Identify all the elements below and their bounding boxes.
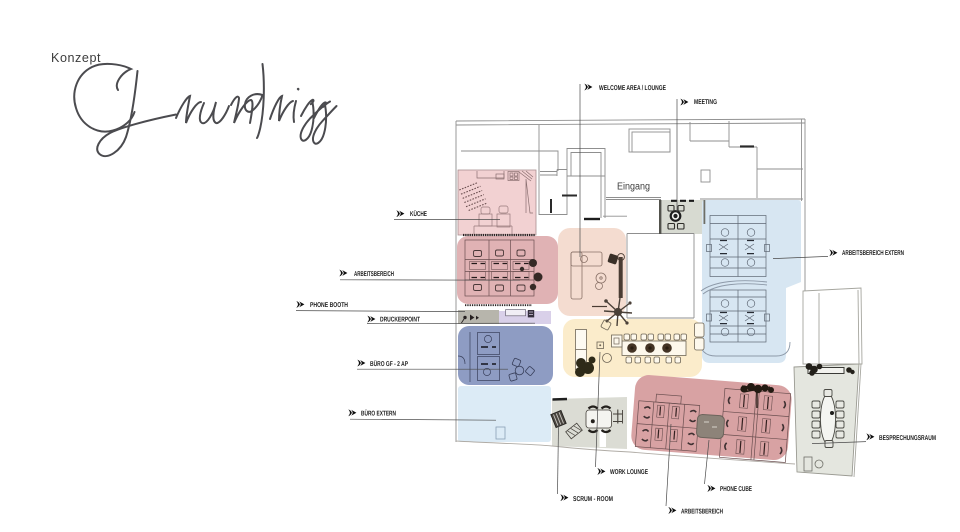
svg-text:ARBEITSBEREICH: ARBEITSBEREICH [681, 509, 723, 516]
svg-text:KÜCHE: KÜCHE [410, 210, 427, 218]
svg-text:BÜRO GF - 2 AP: BÜRO GF - 2 AP [370, 360, 408, 368]
svg-text:WELCOME AREA / LOUNGE: WELCOME AREA / LOUNGE [599, 84, 666, 92]
svg-text:PHONE CUBE: PHONE CUBE [720, 486, 752, 493]
svg-text:Konzept: Konzept [51, 51, 101, 65]
svg-text:BÜRO EXTERN: BÜRO EXTERN [361, 409, 396, 417]
svg-text:WORK LOUNGE: WORK LOUNGE [610, 469, 648, 476]
svg-text:BESPRECHUNGSRAUM: BESPRECHUNGSRAUM [879, 435, 936, 442]
svg-text:MEETING: MEETING [694, 99, 717, 106]
svg-text:ARBEITSBEREICH: ARBEITSBEREICH [354, 271, 394, 278]
svg-text:DRUCKERPOINT: DRUCKERPOINT [380, 316, 421, 323]
svg-text:ARBEITSBEREICH EXTERN: ARBEITSBEREICH EXTERN [842, 250, 904, 257]
svg-text:Eingang: Eingang [617, 182, 650, 193]
svg-text:PHONE BOOTH: PHONE BOOTH [310, 302, 348, 309]
svg-text:SCRUM - ROOM: SCRUM - ROOM [573, 496, 613, 503]
